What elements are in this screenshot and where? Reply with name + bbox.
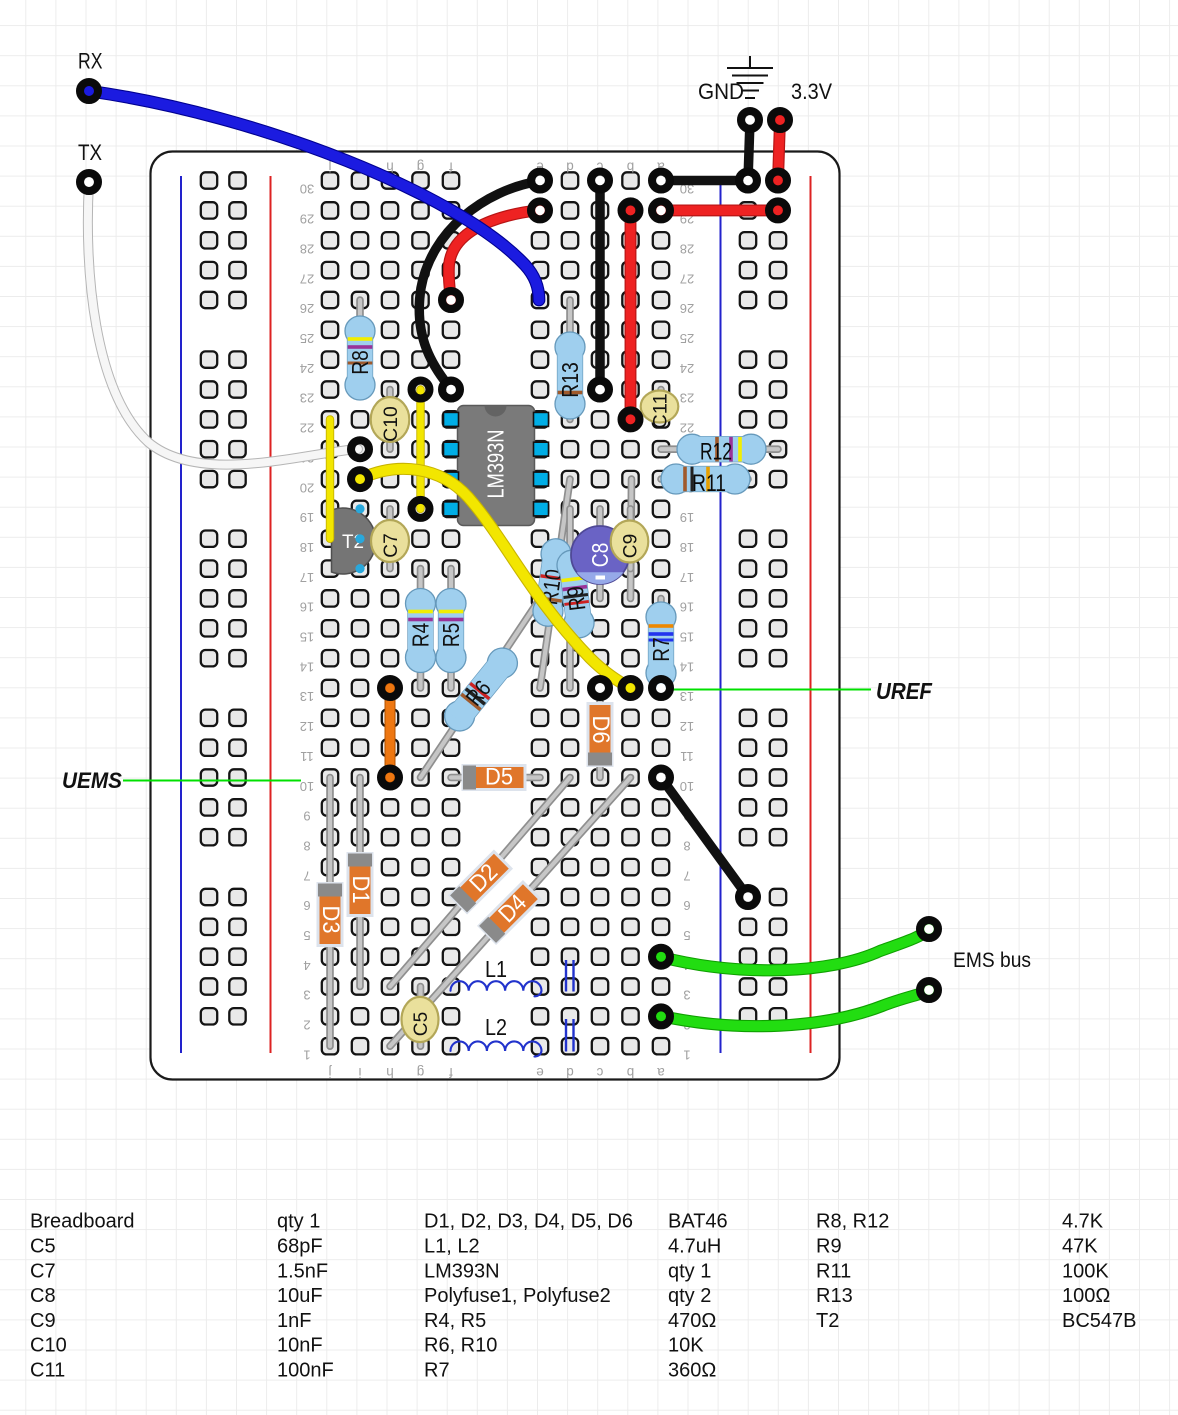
- svg-text:22: 22: [300, 421, 314, 436]
- svg-text:10: 10: [680, 779, 694, 794]
- svg-text:4.7uH: 4.7uH: [668, 1236, 721, 1258]
- svg-text:100K: 100K: [1062, 1260, 1109, 1282]
- svg-text:29: 29: [300, 212, 314, 227]
- svg-text:RX: RX: [78, 49, 103, 74]
- svg-text:R9: R9: [562, 585, 591, 612]
- svg-text:19: 19: [680, 510, 694, 525]
- svg-text:6: 6: [303, 898, 310, 913]
- svg-text:C10: C10: [381, 406, 402, 442]
- svg-text:1: 1: [303, 1047, 310, 1062]
- svg-text:18: 18: [300, 540, 314, 555]
- svg-text:470Ω: 470Ω: [668, 1310, 716, 1332]
- svg-text:14: 14: [680, 659, 694, 674]
- svg-text:T2: T2: [816, 1310, 839, 1332]
- svg-text:68pF: 68pF: [277, 1236, 323, 1258]
- svg-text:13: 13: [300, 689, 314, 704]
- svg-text:27: 27: [680, 271, 694, 286]
- svg-text:4.7K: 4.7K: [1062, 1211, 1104, 1233]
- svg-text:25: 25: [300, 331, 314, 346]
- svg-text:16: 16: [680, 600, 694, 615]
- svg-text:b: b: [627, 1065, 635, 1080]
- svg-text:17: 17: [300, 570, 314, 585]
- svg-text:3.3V: 3.3V: [791, 79, 832, 104]
- svg-text:C9: C9: [621, 534, 642, 558]
- svg-text:h: h: [386, 1065, 394, 1080]
- svg-text:C8: C8: [30, 1285, 56, 1307]
- svg-text:R7: R7: [648, 637, 674, 661]
- svg-text:19: 19: [300, 510, 314, 525]
- svg-text:EMS bus: EMS bus: [953, 949, 1031, 972]
- svg-text:C11: C11: [651, 393, 672, 429]
- svg-text:R9: R9: [816, 1236, 842, 1258]
- svg-text:R13: R13: [557, 362, 583, 398]
- svg-text:20: 20: [300, 480, 314, 495]
- svg-text:a: a: [657, 1065, 665, 1080]
- svg-text:26: 26: [680, 301, 694, 316]
- svg-text:D1, D2, D3, D4, D5, D6: D1, D2, D3, D4, D5, D6: [424, 1211, 633, 1233]
- svg-text:R4, R5: R4, R5: [424, 1310, 486, 1332]
- svg-text:10: 10: [300, 779, 314, 794]
- svg-text:25: 25: [680, 331, 694, 346]
- svg-text:24: 24: [300, 361, 314, 376]
- svg-text:R11: R11: [816, 1260, 851, 1282]
- svg-text:28: 28: [680, 241, 694, 256]
- svg-text:qty 2: qty 2: [668, 1285, 711, 1307]
- svg-text:12: 12: [300, 719, 314, 734]
- svg-text:10nF: 10nF: [277, 1335, 323, 1357]
- svg-text:12: 12: [680, 719, 694, 734]
- svg-text:100Ω: 100Ω: [1062, 1285, 1110, 1307]
- svg-text:LM393N: LM393N: [424, 1260, 500, 1282]
- svg-text:C5: C5: [30, 1236, 56, 1258]
- svg-text:R4: R4: [408, 623, 434, 648]
- svg-text:8: 8: [303, 839, 310, 854]
- svg-text:Breadboard: Breadboard: [30, 1211, 135, 1233]
- svg-text:R5: R5: [438, 623, 464, 647]
- svg-text:8: 8: [683, 839, 690, 854]
- svg-text:g: g: [417, 160, 425, 175]
- svg-text:15: 15: [300, 630, 314, 645]
- svg-text:LM393N: LM393N: [483, 430, 509, 499]
- svg-text:27: 27: [300, 271, 314, 286]
- svg-text:18: 18: [680, 540, 694, 555]
- svg-text:3: 3: [303, 988, 310, 1003]
- svg-text:BAT46: BAT46: [668, 1211, 728, 1233]
- svg-text:C5: C5: [411, 1012, 432, 1036]
- svg-text:13: 13: [680, 689, 694, 704]
- svg-text:16: 16: [300, 600, 314, 615]
- svg-text:4: 4: [303, 958, 310, 973]
- svg-text:5: 5: [303, 928, 310, 943]
- svg-text:UEMS: UEMS: [62, 768, 122, 793]
- svg-text:j: j: [329, 160, 333, 175]
- svg-text:i: i: [359, 1065, 362, 1080]
- svg-text:D1: D1: [347, 876, 374, 904]
- svg-text:D5: D5: [485, 764, 513, 791]
- svg-text:9: 9: [303, 809, 310, 824]
- svg-text:360Ω: 360Ω: [668, 1360, 716, 1382]
- svg-text:b: b: [627, 160, 635, 175]
- svg-text:23: 23: [300, 391, 314, 406]
- svg-text:d: d: [566, 160, 574, 175]
- svg-text:C7: C7: [30, 1260, 56, 1282]
- svg-text:j: j: [329, 1065, 333, 1080]
- svg-text:7: 7: [683, 868, 690, 883]
- svg-text:1: 1: [683, 1047, 690, 1062]
- svg-text:2: 2: [303, 1018, 310, 1033]
- svg-text:10uF: 10uF: [277, 1285, 323, 1307]
- svg-text:TX: TX: [78, 140, 102, 165]
- svg-text:10K: 10K: [668, 1335, 704, 1357]
- svg-text:1.5nF: 1.5nF: [277, 1260, 328, 1282]
- svg-text:C8: C8: [587, 543, 613, 568]
- svg-text:R7: R7: [424, 1360, 450, 1382]
- svg-text:c: c: [596, 1065, 603, 1080]
- svg-text:L2: L2: [485, 1014, 507, 1040]
- svg-text:11: 11: [680, 749, 694, 764]
- svg-text:C11: C11: [30, 1360, 65, 1382]
- svg-text:L1, L2: L1, L2: [424, 1236, 480, 1258]
- svg-text:qty 1: qty 1: [277, 1211, 320, 1233]
- svg-text:24: 24: [680, 361, 694, 376]
- svg-text:C9: C9: [30, 1310, 56, 1332]
- svg-text:f: f: [449, 1065, 453, 1080]
- svg-text:5: 5: [683, 928, 690, 943]
- svg-text:3: 3: [683, 988, 690, 1003]
- svg-text:L1: L1: [485, 956, 507, 982]
- svg-text:D3: D3: [317, 906, 344, 934]
- svg-text:7: 7: [303, 868, 310, 883]
- svg-text:R12: R12: [700, 439, 732, 466]
- svg-text:C7: C7: [381, 533, 402, 557]
- svg-text:26: 26: [300, 301, 314, 316]
- svg-text:Polyfuse1, Polyfuse2: Polyfuse1, Polyfuse2: [424, 1285, 611, 1307]
- svg-text:BC547B: BC547B: [1062, 1310, 1137, 1332]
- svg-text:UREF: UREF: [876, 678, 933, 704]
- svg-text:qty 1: qty 1: [668, 1260, 711, 1282]
- svg-text:28: 28: [300, 241, 314, 256]
- svg-text:e: e: [536, 1065, 544, 1080]
- svg-text:R8: R8: [347, 350, 373, 374]
- svg-text:23: 23: [680, 391, 694, 406]
- svg-text:6: 6: [683, 898, 690, 913]
- svg-text:47K: 47K: [1062, 1236, 1098, 1258]
- svg-text:R6, R10: R6, R10: [424, 1335, 497, 1357]
- svg-text:D6: D6: [587, 716, 614, 744]
- svg-text:R8, R12: R8, R12: [816, 1211, 889, 1233]
- svg-text:100nF: 100nF: [277, 1360, 334, 1382]
- svg-text:d: d: [566, 1065, 574, 1080]
- svg-text:1nF: 1nF: [277, 1310, 311, 1332]
- svg-text:17: 17: [680, 570, 694, 585]
- svg-text:22: 22: [680, 421, 694, 436]
- svg-text:g: g: [417, 1065, 425, 1080]
- svg-text:C10: C10: [30, 1335, 67, 1357]
- svg-text:14: 14: [300, 659, 314, 674]
- svg-text:15: 15: [680, 630, 694, 645]
- svg-text:11: 11: [300, 749, 314, 764]
- svg-text:R13: R13: [816, 1285, 853, 1307]
- svg-text:30: 30: [300, 182, 314, 197]
- svg-text:R11: R11: [692, 470, 726, 497]
- svg-text:f: f: [449, 160, 453, 175]
